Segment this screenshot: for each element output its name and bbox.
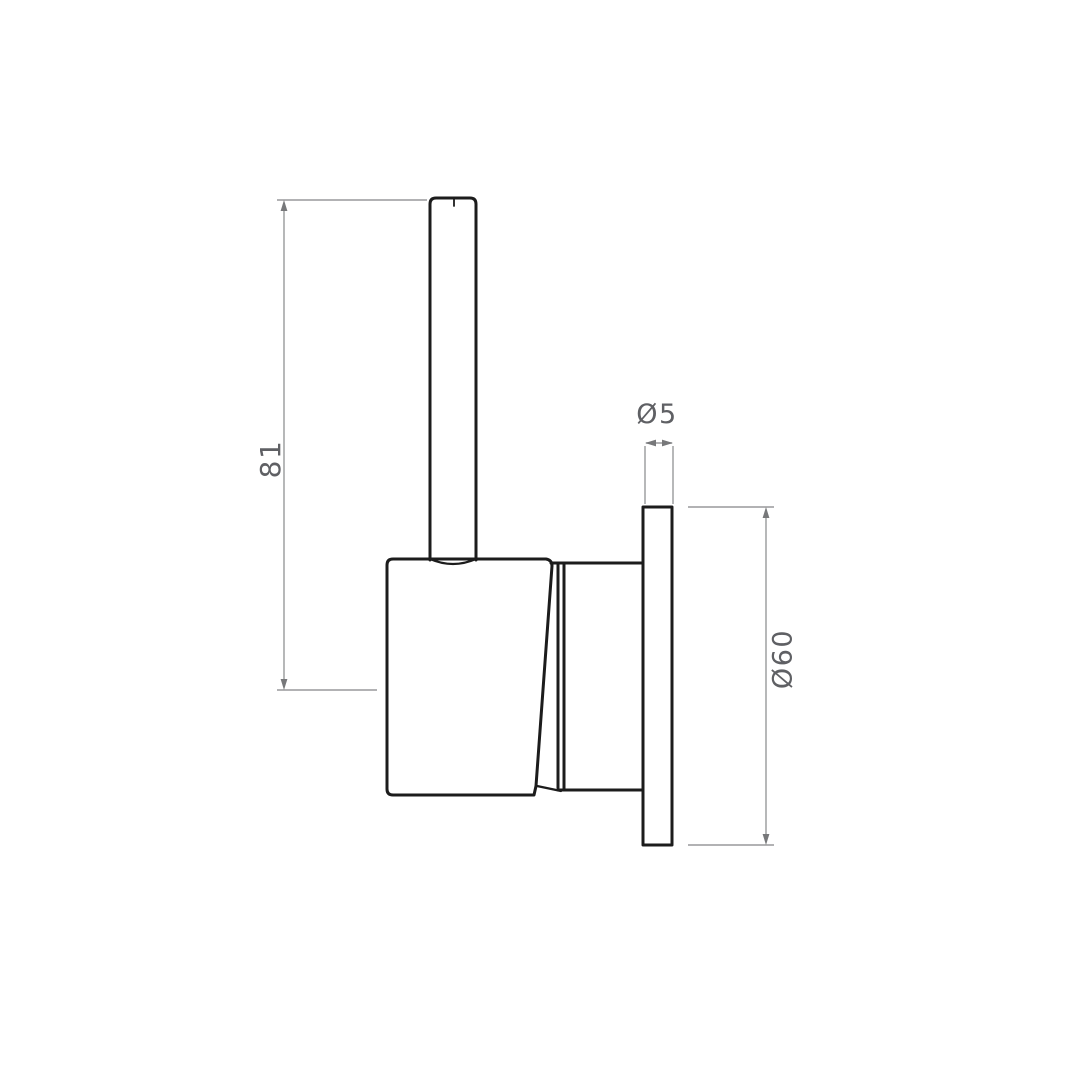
arrow-up-plate-diameter [763, 507, 770, 518]
lever-handle-outline [430, 198, 476, 560]
product-technical-drawing: 81 Ø5 Ø60 [0, 0, 1080, 1080]
plate-diameter-label: Ø60 [768, 629, 799, 689]
dimension-label-group: 81 Ø5 Ø60 [254, 399, 799, 689]
arrow-up-lever-height [281, 200, 288, 211]
wall-plate-outline [643, 507, 672, 845]
part-outline-group [387, 198, 672, 845]
arrow-right-plate-thickness [662, 440, 673, 447]
arrow-down-lever-height [281, 679, 288, 690]
dimension-line-group [277, 200, 774, 845]
arrow-down-plate-diameter [763, 834, 770, 845]
drawing-canvas: 81 Ø5 Ø60 [0, 0, 1080, 1080]
handle-cap-outline [387, 559, 552, 795]
arrow-left-plate-thickness [645, 440, 656, 447]
lever-height-label: 81 [254, 440, 287, 479]
body-collar-outline [551, 563, 643, 790]
plate-thickness-label: Ø5 [636, 399, 677, 430]
dimension-arrow-group [281, 200, 770, 845]
